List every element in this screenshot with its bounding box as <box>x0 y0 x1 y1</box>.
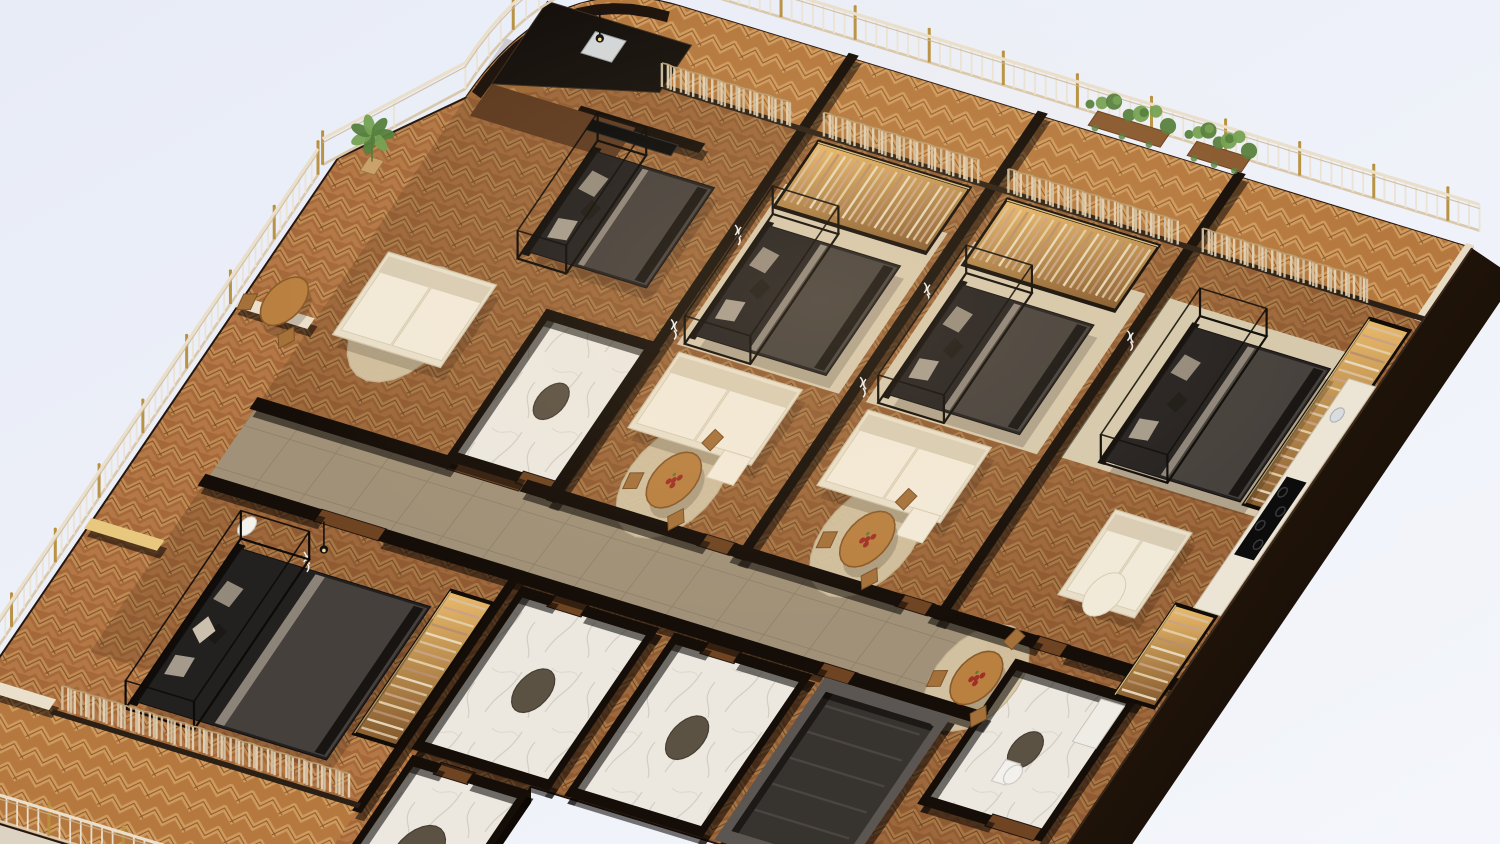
post-finial <box>97 463 100 466</box>
post-finial <box>54 528 57 531</box>
post-finial <box>10 592 13 595</box>
post-finial <box>321 130 324 133</box>
screenshot-root <box>0 0 1500 844</box>
post-finial <box>1372 164 1375 167</box>
post-finial <box>47 802 50 805</box>
pendant-bulb <box>322 549 326 553</box>
post-finial <box>229 269 232 272</box>
post-finial <box>1446 186 1449 189</box>
post-finial <box>316 140 319 143</box>
post-finial <box>141 398 144 401</box>
post-finial <box>185 334 188 337</box>
post-finial <box>122 824 125 827</box>
post-finial <box>273 205 276 208</box>
warm-light-overlay <box>260 0 1380 630</box>
floor-plan-render <box>0 0 1500 844</box>
